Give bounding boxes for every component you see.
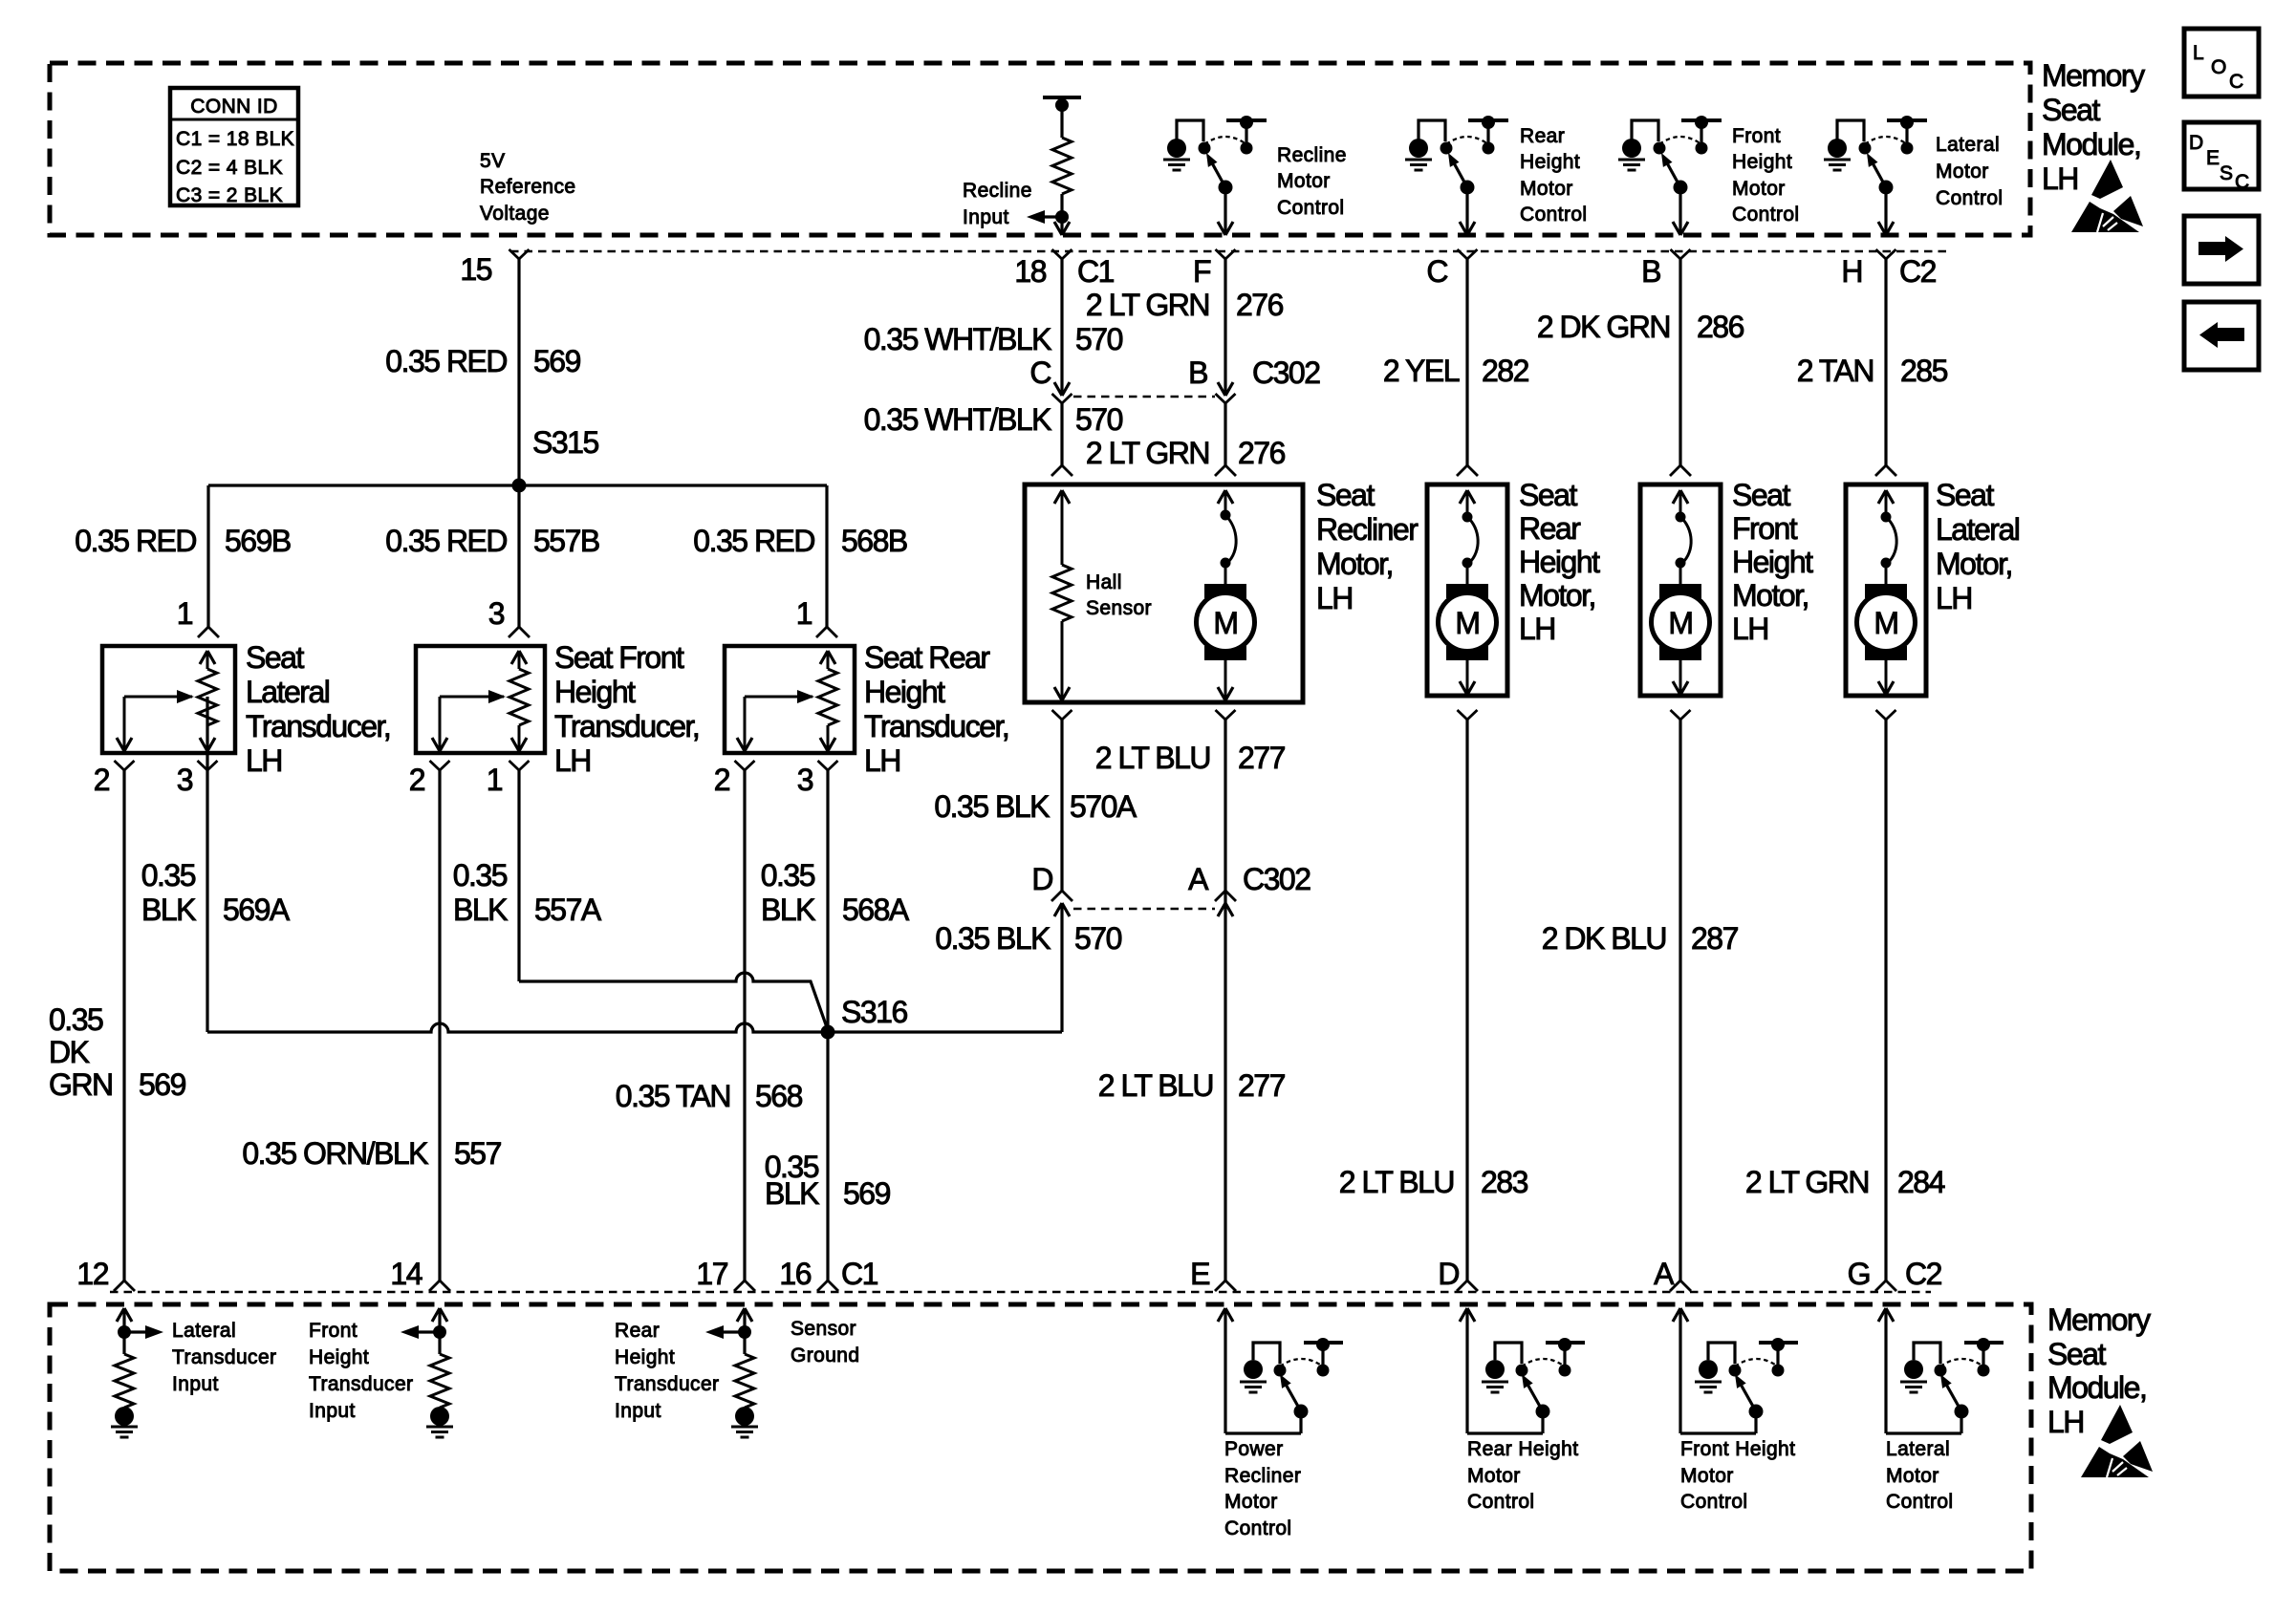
- svg-text:CONN ID: CONN ID: [190, 96, 277, 118]
- svg-text:D: D: [1438, 1257, 1459, 1291]
- svg-text:Seat: Seat: [246, 640, 304, 675]
- svg-text:2 LT GRN: 2 LT GRN: [1745, 1165, 1869, 1199]
- svg-text:LH: LH: [246, 743, 282, 778]
- svg-text:18: 18: [1014, 254, 1046, 289]
- svg-text:12: 12: [76, 1257, 108, 1291]
- svg-text:569B: 569B: [225, 524, 291, 558]
- svg-text:Sensor: Sensor: [791, 1318, 856, 1340]
- svg-text:0.35 BLK: 0.35 BLK: [935, 921, 1051, 956]
- svg-text:Memory: Memory: [2047, 1302, 2151, 1337]
- svg-text:0.35 TAN: 0.35 TAN: [616, 1079, 730, 1113]
- svg-text:Lateral: Lateral: [1936, 134, 2000, 156]
- svg-text:570: 570: [1075, 322, 1123, 356]
- svg-text:Height: Height: [1519, 545, 1600, 579]
- svg-text:285: 285: [1900, 354, 1948, 388]
- svg-text:BLK: BLK: [453, 893, 508, 927]
- svg-text:Reference: Reference: [480, 176, 576, 198]
- svg-text:C: C: [1029, 355, 1051, 390]
- svg-text:Control: Control: [1520, 204, 1588, 226]
- svg-text:Motor,: Motor,: [1519, 578, 1595, 613]
- svg-text:Motor,: Motor,: [1732, 578, 1809, 613]
- svg-text:B: B: [1188, 355, 1207, 390]
- svg-text:Input: Input: [172, 1373, 219, 1395]
- svg-text:570: 570: [1075, 402, 1123, 437]
- svg-text:Transducer,: Transducer,: [864, 709, 1008, 743]
- svg-text:0.35: 0.35: [141, 858, 196, 893]
- svg-text:569: 569: [843, 1176, 891, 1211]
- svg-text:283: 283: [1481, 1165, 1528, 1199]
- svg-text:M: M: [1874, 606, 1897, 640]
- svg-text:C302: C302: [1252, 355, 1320, 390]
- svg-text:Transducer,: Transducer,: [554, 709, 699, 743]
- svg-text:Front: Front: [1732, 125, 1781, 147]
- svg-text:Transducer,: Transducer,: [246, 709, 390, 743]
- svg-text:3: 3: [177, 763, 193, 797]
- svg-text:DK: DK: [49, 1035, 90, 1069]
- svg-text:2 DK BLU: 2 DK BLU: [1542, 921, 1666, 956]
- svg-text:569A: 569A: [223, 893, 291, 927]
- svg-text:282: 282: [1482, 354, 1529, 388]
- svg-text:LH: LH: [864, 743, 900, 778]
- svg-text:A: A: [1654, 1257, 1675, 1291]
- svg-text:Height: Height: [554, 675, 636, 709]
- svg-text:C1: C1: [1077, 254, 1115, 289]
- svg-text:0.35 WHT/BLK: 0.35 WHT/BLK: [864, 322, 1052, 356]
- svg-text:Transducer: Transducer: [309, 1373, 413, 1395]
- svg-text:Height: Height: [1520, 151, 1580, 173]
- svg-text:Control: Control: [1224, 1517, 1292, 1539]
- svg-text:Sensor: Sensor: [1086, 597, 1152, 619]
- svg-text:BLK: BLK: [761, 893, 815, 927]
- svg-text:Control: Control: [1467, 1491, 1535, 1513]
- svg-text:Front Height: Front Height: [1680, 1438, 1795, 1460]
- svg-text:Motor: Motor: [1680, 1465, 1734, 1487]
- svg-text:Module,: Module,: [2042, 127, 2140, 161]
- svg-text:557: 557: [454, 1136, 502, 1171]
- svg-text:2 LT BLU: 2 LT BLU: [1339, 1165, 1454, 1199]
- svg-text:276: 276: [1236, 288, 1284, 322]
- svg-text:0.35 BLK: 0.35 BLK: [934, 789, 1050, 824]
- svg-text:LH: LH: [2047, 1405, 2084, 1439]
- svg-text:570: 570: [1074, 921, 1122, 956]
- svg-text:1: 1: [487, 763, 503, 797]
- svg-text:2 LT BLU: 2 LT BLU: [1095, 741, 1210, 775]
- svg-text:286: 286: [1697, 310, 1744, 344]
- svg-text:Seat: Seat: [1519, 478, 1577, 512]
- svg-text:Height: Height: [1732, 151, 1792, 173]
- svg-text:0.35 ORN/BLK: 0.35 ORN/BLK: [242, 1136, 428, 1171]
- svg-text:C2: C2: [1905, 1257, 1942, 1291]
- svg-text:S315: S315: [532, 425, 598, 460]
- svg-text:Motor: Motor: [1277, 170, 1331, 192]
- svg-text:568B: 568B: [841, 524, 907, 558]
- svg-text:Control: Control: [1277, 197, 1345, 219]
- svg-text:Height: Height: [864, 675, 945, 709]
- svg-text:Recline: Recline: [963, 180, 1032, 202]
- svg-text:2 LT GRN: 2 LT GRN: [1086, 288, 1209, 322]
- svg-text:Transducer: Transducer: [615, 1373, 719, 1395]
- svg-text:Seat Front: Seat Front: [554, 640, 684, 675]
- svg-text:Seat: Seat: [1936, 478, 1994, 512]
- svg-text:Control: Control: [1732, 204, 1800, 226]
- svg-text:BLK: BLK: [765, 1176, 819, 1211]
- svg-text:Motor: Motor: [1732, 178, 1786, 200]
- svg-text:E: E: [2206, 147, 2220, 169]
- svg-text:C: C: [2235, 171, 2250, 193]
- svg-text:H: H: [1841, 254, 1862, 289]
- svg-text:O: O: [2211, 56, 2227, 78]
- svg-text:GRN: GRN: [49, 1067, 113, 1102]
- svg-text:570A: 570A: [1070, 789, 1137, 824]
- svg-text:Lateral: Lateral: [246, 675, 329, 709]
- svg-text:2 LT BLU: 2 LT BLU: [1098, 1068, 1213, 1103]
- svg-text:BLK: BLK: [141, 893, 196, 927]
- svg-text:Input: Input: [963, 206, 1009, 228]
- svg-text:Motor: Motor: [1467, 1465, 1521, 1487]
- svg-text:569: 569: [139, 1067, 186, 1102]
- svg-text:Recliner: Recliner: [1224, 1465, 1301, 1487]
- svg-text:0.35: 0.35: [761, 858, 815, 893]
- svg-text:Power: Power: [1224, 1438, 1284, 1460]
- svg-text:287: 287: [1691, 921, 1739, 956]
- svg-text:M: M: [1213, 606, 1237, 640]
- svg-text:Module,: Module,: [2047, 1370, 2146, 1405]
- svg-text:Height: Height: [1732, 545, 1813, 579]
- svg-text:Rear: Rear: [1520, 125, 1565, 147]
- svg-text:Ground: Ground: [791, 1345, 859, 1367]
- svg-text:557A: 557A: [534, 893, 602, 927]
- svg-text:0.35 RED: 0.35 RED: [385, 344, 507, 378]
- svg-text:Seat: Seat: [2047, 1337, 2106, 1371]
- svg-text:16: 16: [779, 1257, 811, 1291]
- svg-text:C2 = 4 BLK: C2 = 4 BLK: [176, 157, 283, 179]
- svg-text:C302: C302: [1243, 862, 1310, 896]
- svg-text:Rear: Rear: [615, 1320, 660, 1342]
- svg-text:C1 = 18 BLK: C1 = 18 BLK: [176, 128, 294, 150]
- svg-text:2: 2: [714, 763, 730, 797]
- svg-text:Height: Height: [309, 1346, 369, 1368]
- svg-text:568: 568: [755, 1079, 803, 1113]
- svg-text:0.35 RED: 0.35 RED: [75, 524, 196, 558]
- svg-text:15: 15: [460, 252, 491, 287]
- svg-text:B: B: [1641, 254, 1660, 289]
- svg-text:Seat: Seat: [1732, 478, 1790, 512]
- svg-text:S316: S316: [841, 995, 907, 1029]
- svg-text:Motor: Motor: [1224, 1491, 1278, 1513]
- svg-text:0.35 RED: 0.35 RED: [385, 524, 507, 558]
- svg-text:Front: Front: [309, 1320, 357, 1342]
- svg-text:568A: 568A: [842, 893, 910, 927]
- svg-text:Motor,: Motor,: [1316, 547, 1393, 581]
- svg-text:Motor: Motor: [1936, 161, 1989, 183]
- svg-text:LH: LH: [2042, 161, 2078, 196]
- svg-text:D: D: [2189, 132, 2204, 154]
- svg-text:0.35 WHT/BLK: 0.35 WHT/BLK: [864, 402, 1052, 437]
- svg-text:C: C: [2229, 71, 2244, 93]
- svg-text:Lateral: Lateral: [1886, 1438, 1950, 1460]
- svg-text:Lateral: Lateral: [172, 1320, 236, 1342]
- svg-text:Seat: Seat: [2042, 93, 2100, 127]
- svg-text:2 LT GRN: 2 LT GRN: [1086, 436, 1209, 470]
- svg-text:557B: 557B: [533, 524, 599, 558]
- svg-text:S: S: [2220, 162, 2233, 184]
- svg-text:C3 = 2 BLK: C3 = 2 BLK: [176, 184, 283, 206]
- svg-text:Rear: Rear: [1519, 511, 1581, 546]
- svg-text:Input: Input: [309, 1400, 356, 1422]
- svg-text:3: 3: [488, 596, 505, 631]
- svg-text:2 TAN: 2 TAN: [1797, 354, 1874, 388]
- svg-text:Seat: Seat: [1316, 478, 1375, 512]
- svg-text:Memory: Memory: [2042, 58, 2145, 93]
- svg-text:277: 277: [1238, 741, 1286, 775]
- svg-text:C1: C1: [841, 1257, 878, 1291]
- svg-text:Motor,: Motor,: [1936, 547, 2012, 581]
- svg-text:Height: Height: [615, 1346, 675, 1368]
- svg-text:L: L: [2193, 42, 2204, 64]
- svg-text:Transducer: Transducer: [172, 1346, 276, 1368]
- svg-text:Control: Control: [1680, 1491, 1748, 1513]
- svg-text:A: A: [1188, 862, 1209, 896]
- svg-text:LH: LH: [554, 743, 591, 778]
- svg-text:Recline: Recline: [1277, 144, 1347, 166]
- svg-text:LH: LH: [1519, 612, 1555, 646]
- svg-text:14: 14: [390, 1257, 422, 1291]
- svg-text:0.35 RED: 0.35 RED: [693, 524, 814, 558]
- svg-text:Front: Front: [1732, 511, 1798, 546]
- svg-text:Control: Control: [1936, 187, 2004, 209]
- svg-text:569: 569: [533, 344, 581, 378]
- svg-text:Rear Height: Rear Height: [1467, 1438, 1578, 1460]
- svg-text:Recliner: Recliner: [1316, 512, 1419, 547]
- svg-text:LH: LH: [1316, 581, 1353, 615]
- svg-text:D: D: [1031, 862, 1052, 896]
- svg-text:2: 2: [94, 763, 110, 797]
- svg-text:5V: 5V: [480, 150, 506, 172]
- svg-text:0.35: 0.35: [453, 858, 508, 893]
- svg-text:G: G: [1848, 1257, 1870, 1291]
- svg-text:C: C: [1426, 254, 1447, 289]
- svg-text:276: 276: [1238, 436, 1286, 470]
- svg-text:Lateral: Lateral: [1936, 512, 2019, 547]
- svg-text:2 DK GRN: 2 DK GRN: [1537, 310, 1670, 344]
- svg-text:Seat Rear: Seat Rear: [864, 640, 990, 675]
- svg-text:3: 3: [797, 763, 813, 797]
- svg-text:284: 284: [1897, 1165, 1945, 1199]
- svg-text:2: 2: [409, 763, 425, 797]
- svg-text:1: 1: [177, 596, 193, 631]
- svg-text:Voltage: Voltage: [480, 203, 550, 225]
- svg-text:17: 17: [696, 1257, 727, 1291]
- svg-text:0.35: 0.35: [49, 1002, 103, 1037]
- svg-text:Motor: Motor: [1886, 1465, 1939, 1487]
- svg-text:Control: Control: [1886, 1491, 1954, 1513]
- svg-text:LH: LH: [1732, 612, 1768, 646]
- svg-text:Hall: Hall: [1086, 571, 1122, 593]
- svg-text:F: F: [1193, 254, 1211, 289]
- svg-text:M: M: [1668, 606, 1692, 640]
- svg-text:C2: C2: [1899, 254, 1937, 289]
- svg-text:Input: Input: [615, 1400, 661, 1422]
- svg-text:E: E: [1190, 1257, 1209, 1291]
- svg-text:1: 1: [796, 596, 812, 631]
- svg-text:Motor: Motor: [1520, 178, 1573, 200]
- svg-text:LH: LH: [1936, 581, 1972, 615]
- svg-text:277: 277: [1238, 1068, 1286, 1103]
- svg-text:M: M: [1455, 606, 1479, 640]
- svg-text:2 YEL: 2 YEL: [1383, 354, 1460, 388]
